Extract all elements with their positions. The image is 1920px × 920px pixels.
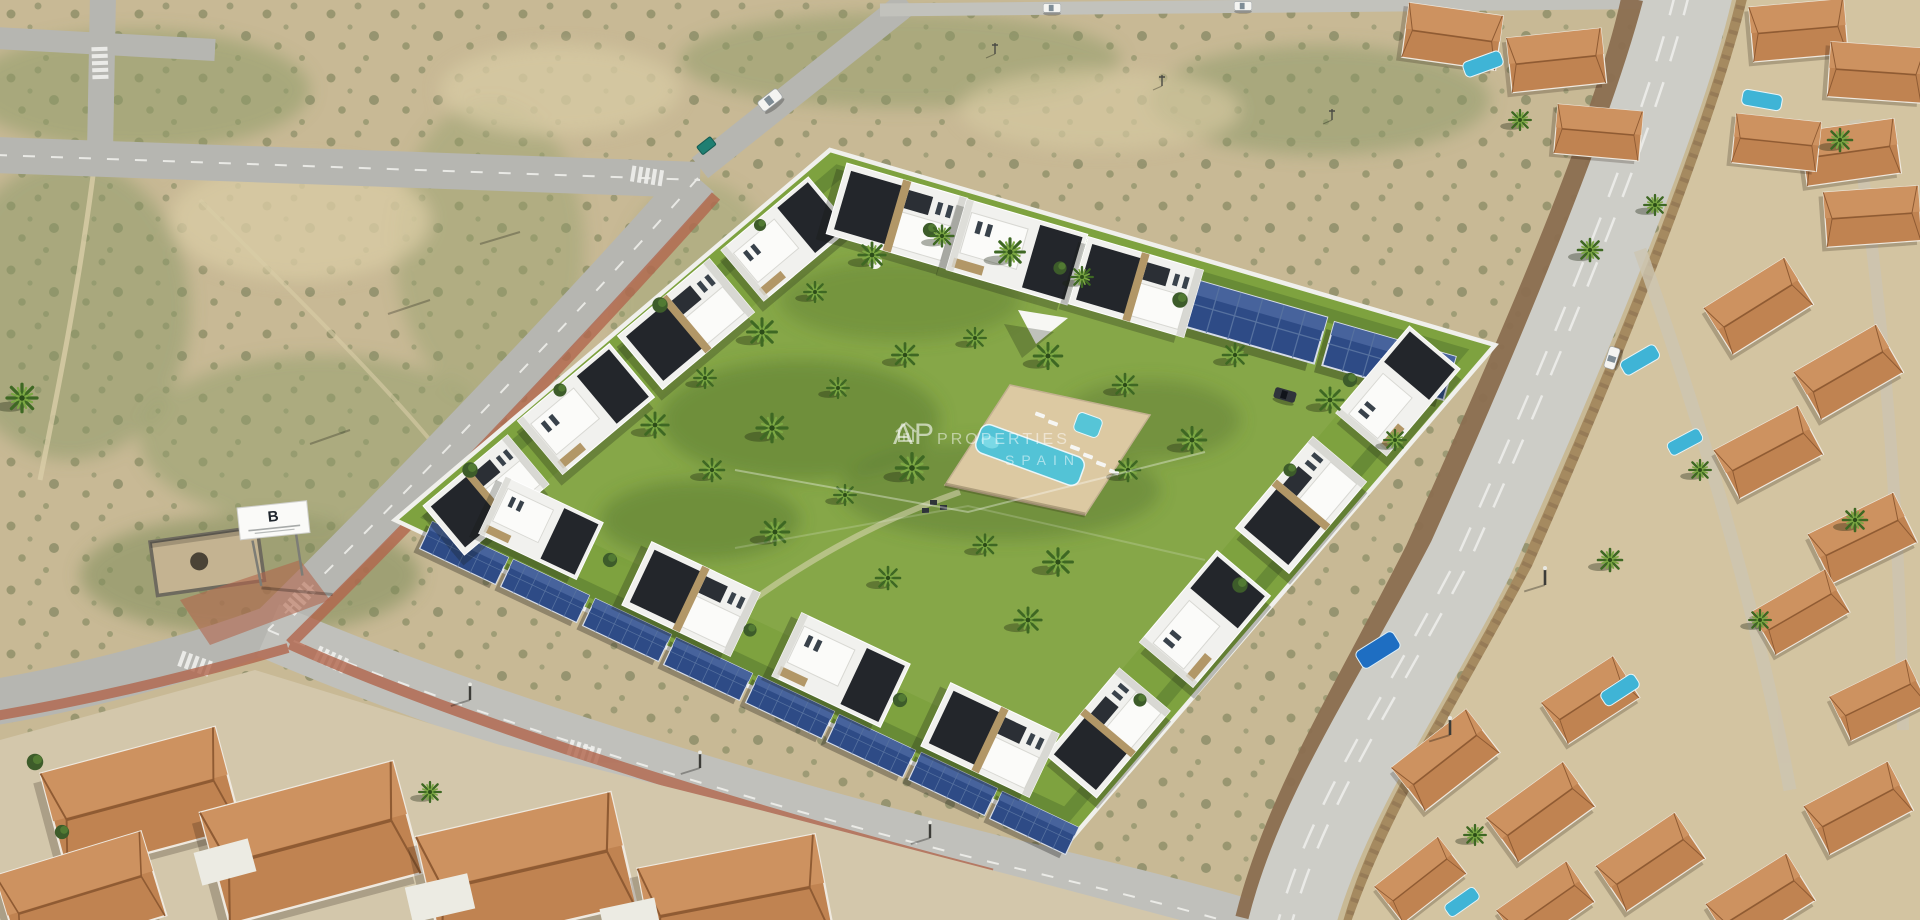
- road-top-narrow: [880, 2, 1700, 10]
- bush: [553, 383, 566, 396]
- white-car: [1043, 4, 1061, 16]
- aerial-scene: B: [0, 0, 1920, 920]
- terracotta-roof: [1501, 28, 1607, 97]
- bush: [462, 462, 477, 477]
- bush: [1283, 463, 1296, 476]
- billboard-logo: B: [267, 508, 280, 526]
- bush: [1172, 292, 1187, 307]
- bush: [1343, 373, 1357, 387]
- road-top-horizontal: [0, 155, 700, 180]
- aerial-photo: B AP PROPERTIES SPAIN: [0, 0, 1920, 920]
- terracotta-roof: [1726, 113, 1821, 175]
- bush: [893, 693, 907, 707]
- terracotta-roof: [1822, 41, 1920, 107]
- bush: [55, 825, 69, 839]
- bush: [652, 297, 667, 312]
- bush: [603, 553, 617, 567]
- white-car: [1234, 2, 1252, 14]
- terracotta-roof: [1818, 186, 1920, 252]
- bush: [1053, 261, 1066, 274]
- bush: [1232, 577, 1247, 592]
- bush: [743, 623, 756, 636]
- bush: [1133, 693, 1146, 706]
- bush: [754, 219, 766, 231]
- bush: [27, 754, 44, 771]
- terracotta-roof: [1549, 104, 1643, 165]
